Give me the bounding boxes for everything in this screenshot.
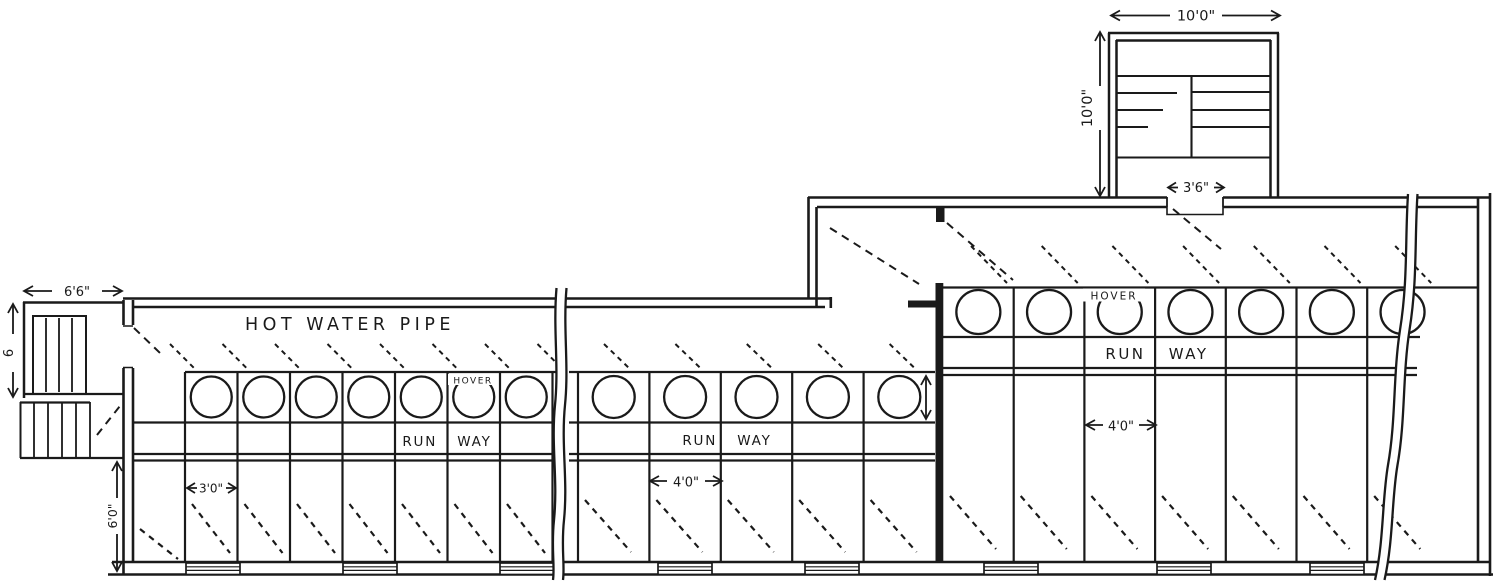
bottom-door (500, 563, 554, 575)
bottom-door (805, 563, 859, 575)
runway-middle-label: RUN WAY (682, 433, 771, 449)
dim-feed-room-width-text: 10'0" (1177, 9, 1215, 25)
dim-pen-middle-text: 4'0" (673, 476, 699, 491)
bottom-door-frame (500, 563, 554, 575)
bottom-door (343, 563, 397, 575)
bottom-door-frame (805, 563, 859, 575)
dim-pen-left-text: 3'0" (199, 482, 223, 496)
bottom-door (984, 563, 1038, 575)
bottom-door-frame (1157, 563, 1211, 575)
bottom-door-frame (186, 563, 240, 575)
bottom-door-frame (1310, 563, 1364, 575)
door-stub (936, 207, 945, 222)
dim-feed-room-depth-text: 10'0" (1080, 89, 1096, 127)
bottom-door-frame (984, 563, 1038, 575)
runway-left-label: RUN WAY (402, 434, 491, 450)
section-partition-wall (936, 283, 944, 562)
bottom-door (1157, 563, 1211, 575)
brooder-house-floor-plan: HOT WATER PIPE HOVER HOVER RUN WAY RUN W… (0, 0, 1500, 584)
dim-alley-depth-text: 6'0" (105, 503, 120, 528)
paper-background (0, 0, 1500, 584)
bottom-door-frame (658, 563, 712, 575)
partition-stub (908, 301, 936, 308)
bottom-door (658, 563, 712, 575)
dim-pen-right-text: 4'0" (1108, 420, 1134, 435)
hot-water-pipe-label: HOT WATER PIPE (245, 315, 455, 335)
dim-feed-room-door-text: 3'6" (1183, 181, 1209, 196)
floor-plan-canvas: HOT WATER PIPE HOVER HOVER RUN WAY RUN W… (0, 0, 1500, 584)
runway-right-label: RUN WAY (1105, 345, 1208, 363)
bottom-door (186, 563, 240, 575)
dim-annex-width-text: 6'6" (64, 285, 90, 300)
hover-left-label: HOVER (453, 377, 492, 387)
bottom-door (1310, 563, 1364, 575)
bottom-door-frame (343, 563, 397, 575)
hover-right-label: HOVER (1090, 291, 1137, 303)
dim-annex-depth-text: 6 (2, 349, 17, 357)
